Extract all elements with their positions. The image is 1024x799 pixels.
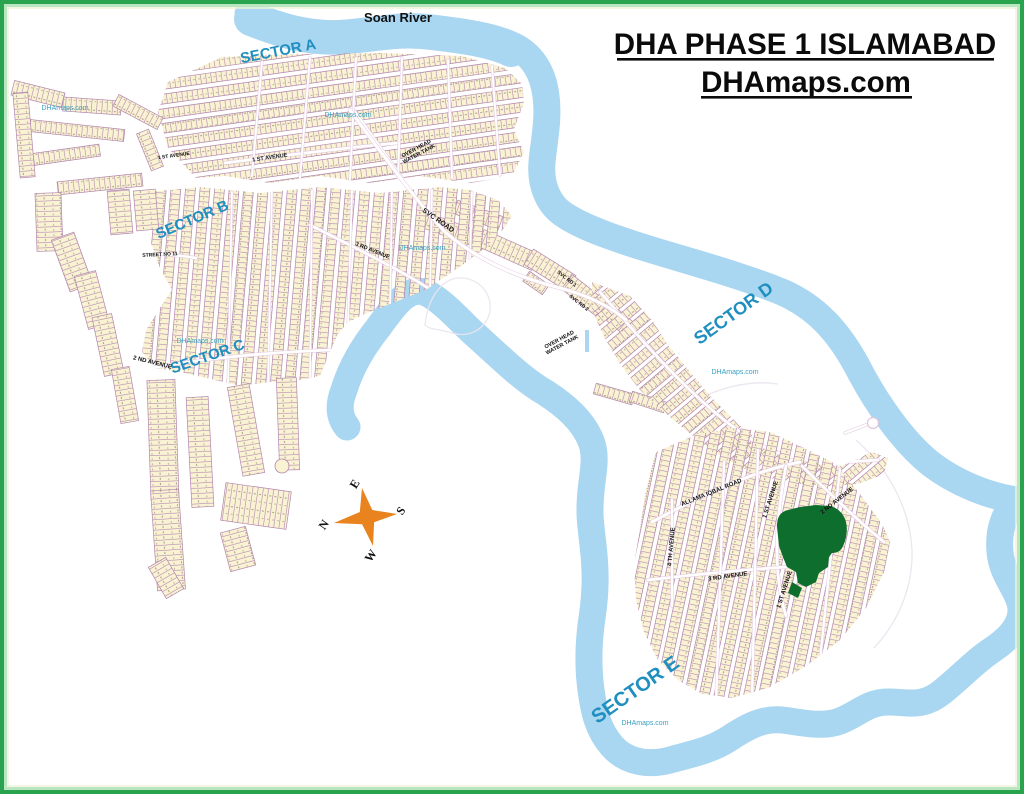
svg-text:DHAmaps.com: DHAmaps.com bbox=[711, 369, 758, 376]
svg-text:DHAmaps.com: DHAmaps.com bbox=[701, 66, 911, 99]
svg-text:Soan River: Soan River bbox=[364, 10, 432, 25]
svg-text:DHAmaps.com: DHAmaps.com bbox=[176, 338, 223, 345]
svg-text:DHAmaps.com: DHAmaps.com bbox=[621, 720, 668, 727]
svg-text:DHAmaps.com: DHAmaps.com bbox=[324, 112, 371, 119]
svg-text:DHAmaps.com: DHAmaps.com bbox=[398, 245, 445, 252]
svg-text:DHAmaps.com: DHAmaps.com bbox=[41, 105, 88, 112]
svg-text:DHA PHASE 1 ISLAMABAD: DHA PHASE 1 ISLAMABAD bbox=[614, 28, 996, 61]
